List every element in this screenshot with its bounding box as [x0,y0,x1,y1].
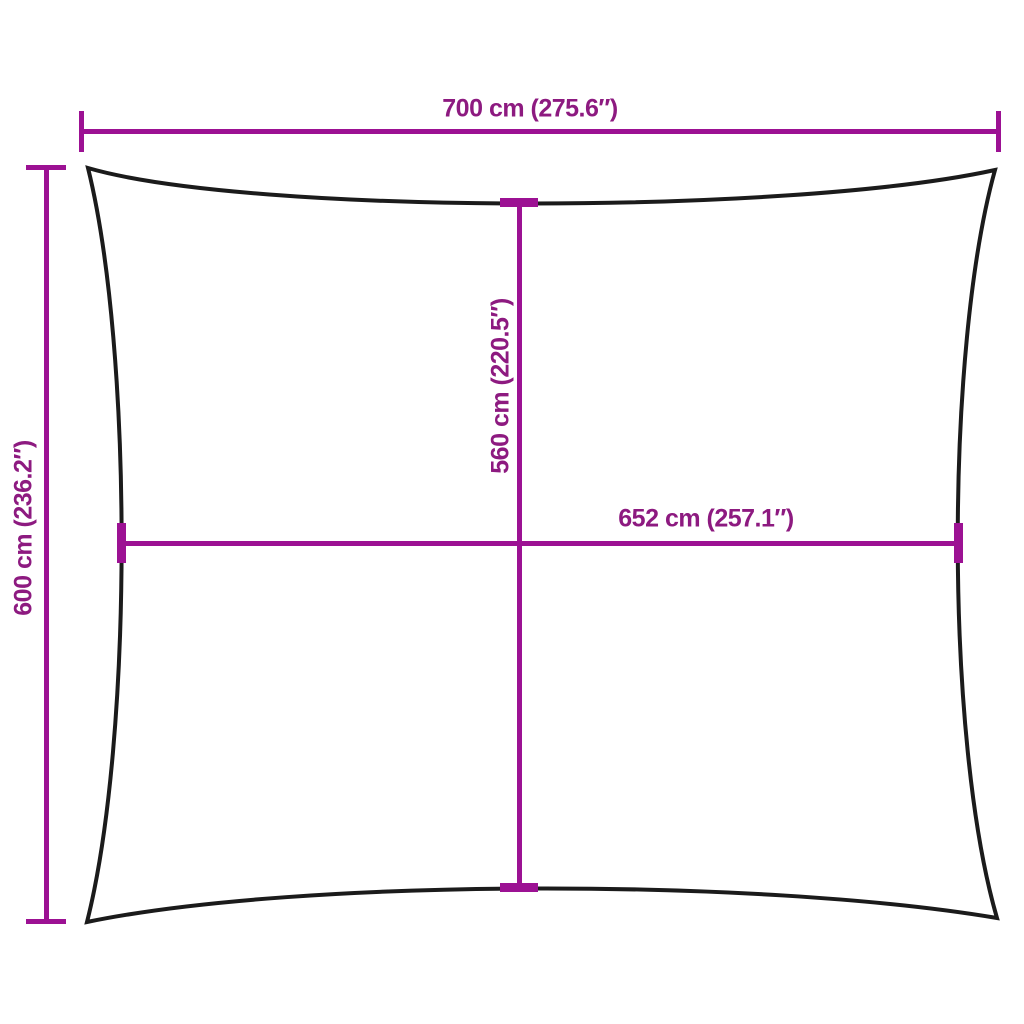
dimension-tick-left-bottom [26,919,66,924]
dimension-tick-top-left [79,111,84,152]
dimension-tick-top-right [996,111,1001,152]
dimension-line-middle-vertical [517,202,522,890]
dimension-cap-middle-vertical-top [500,198,538,207]
dimension-tick-left-top [26,165,66,170]
shade-sail-outline [0,0,1024,1024]
dimension-label-top-width: 700 cm (275.6″) [442,95,617,124]
dimension-cap-middle-vertical-bottom [500,883,538,892]
dimension-line-middle-horizontal [122,541,959,546]
dimension-label-left-height: 600 cm (236.2″) [10,440,39,615]
dimension-label-middle-vertical: 560 cm (220.5″) [487,298,516,473]
dimension-diagram: 700 cm (275.6″) 600 cm (236.2″) 560 cm (… [0,0,1024,1024]
dimension-cap-middle-horizontal-left [117,523,126,563]
dimension-cap-middle-horizontal-right [954,523,963,563]
dimension-label-middle-horizontal: 652 cm (257.1″) [618,505,793,534]
dimension-line-left [44,167,49,922]
dimension-line-top [82,129,998,134]
